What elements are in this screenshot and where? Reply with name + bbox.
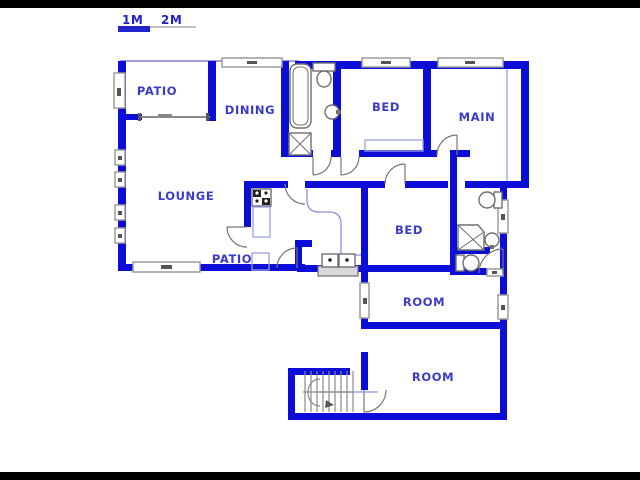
toilet-icon	[313, 63, 335, 87]
wardrobe-line	[365, 140, 423, 151]
door-bed-middle	[385, 164, 405, 184]
window-room-upper-east	[498, 295, 508, 319]
kitchen-sink-icon	[318, 254, 358, 276]
basin-icon-2	[485, 233, 499, 249]
label-lounge: LOUNGE	[158, 189, 215, 203]
scale-label-2m: 2M	[161, 13, 182, 27]
label-patio-top: PATIO	[137, 84, 177, 98]
window-bed-top	[362, 58, 410, 67]
window-lounge-left-2	[115, 172, 125, 187]
wall-room-lower-west	[361, 352, 368, 390]
wall-kitchen-top-east	[305, 181, 385, 188]
window-lounge-left-4	[115, 228, 125, 243]
window-wc-threshold	[487, 269, 503, 276]
floor-plan-drawing: 1M 2M	[0, 0, 640, 480]
window-patio-left	[114, 73, 125, 108]
door-bathroom-top	[313, 157, 331, 175]
toilet-icon-3	[456, 255, 479, 271]
label-patio-bottom: PATIO	[212, 252, 252, 266]
scale-bar: 1M 2M	[118, 13, 196, 32]
label-dining: DINING	[225, 103, 275, 117]
door-bed-top	[341, 157, 359, 175]
wall-bed-mid-bottom	[361, 265, 457, 272]
wall-hall-north-2	[331, 150, 341, 157]
wall-patio2-stub	[295, 240, 312, 247]
wall-room-upper-bottom	[361, 322, 507, 329]
wall-bathroom-top	[465, 181, 529, 188]
label-main: MAIN	[459, 110, 496, 124]
window-main-top	[438, 58, 503, 67]
wall-bottom	[288, 413, 507, 420]
toilet-icon-2	[479, 192, 502, 208]
door-room-lower	[364, 390, 386, 412]
window-room-upper-west	[360, 283, 369, 318]
door-lounge	[227, 227, 247, 247]
window-lounge-left-1	[115, 150, 125, 165]
wall-hall-north-4	[457, 150, 470, 157]
wall-bed-east	[423, 61, 431, 157]
corner-shower-icon	[458, 225, 484, 250]
room-labels: PATIO DINING BED MAIN LOUNGE PATIO BED R…	[137, 84, 495, 384]
label-room-lower: ROOM	[412, 370, 454, 384]
window-lounge-bottom	[133, 262, 200, 272]
window-dining-top	[222, 58, 282, 67]
wall-bed-mid-top	[405, 181, 448, 188]
label-bed-middle: BED	[395, 223, 423, 237]
wall-lounge-kitchen	[244, 181, 251, 227]
floor-plan-page: 1M 2M	[0, 0, 640, 480]
patio-sliding-door	[138, 113, 210, 121]
stove-icon	[252, 189, 271, 206]
wall-bath-west	[281, 61, 289, 157]
label-bed-top: BED	[372, 100, 400, 114]
label-room-upper: ROOM	[403, 295, 445, 309]
wall-kitchen-east	[361, 181, 368, 272]
wall-stair-left	[288, 368, 295, 420]
wall-right	[521, 61, 529, 188]
wall-dining-west	[208, 61, 216, 121]
window-lounge-left-3	[115, 205, 125, 220]
scale-label-1m: 1M	[122, 13, 143, 27]
shower-icon	[289, 133, 311, 155]
bathtub-fixture	[290, 64, 311, 128]
